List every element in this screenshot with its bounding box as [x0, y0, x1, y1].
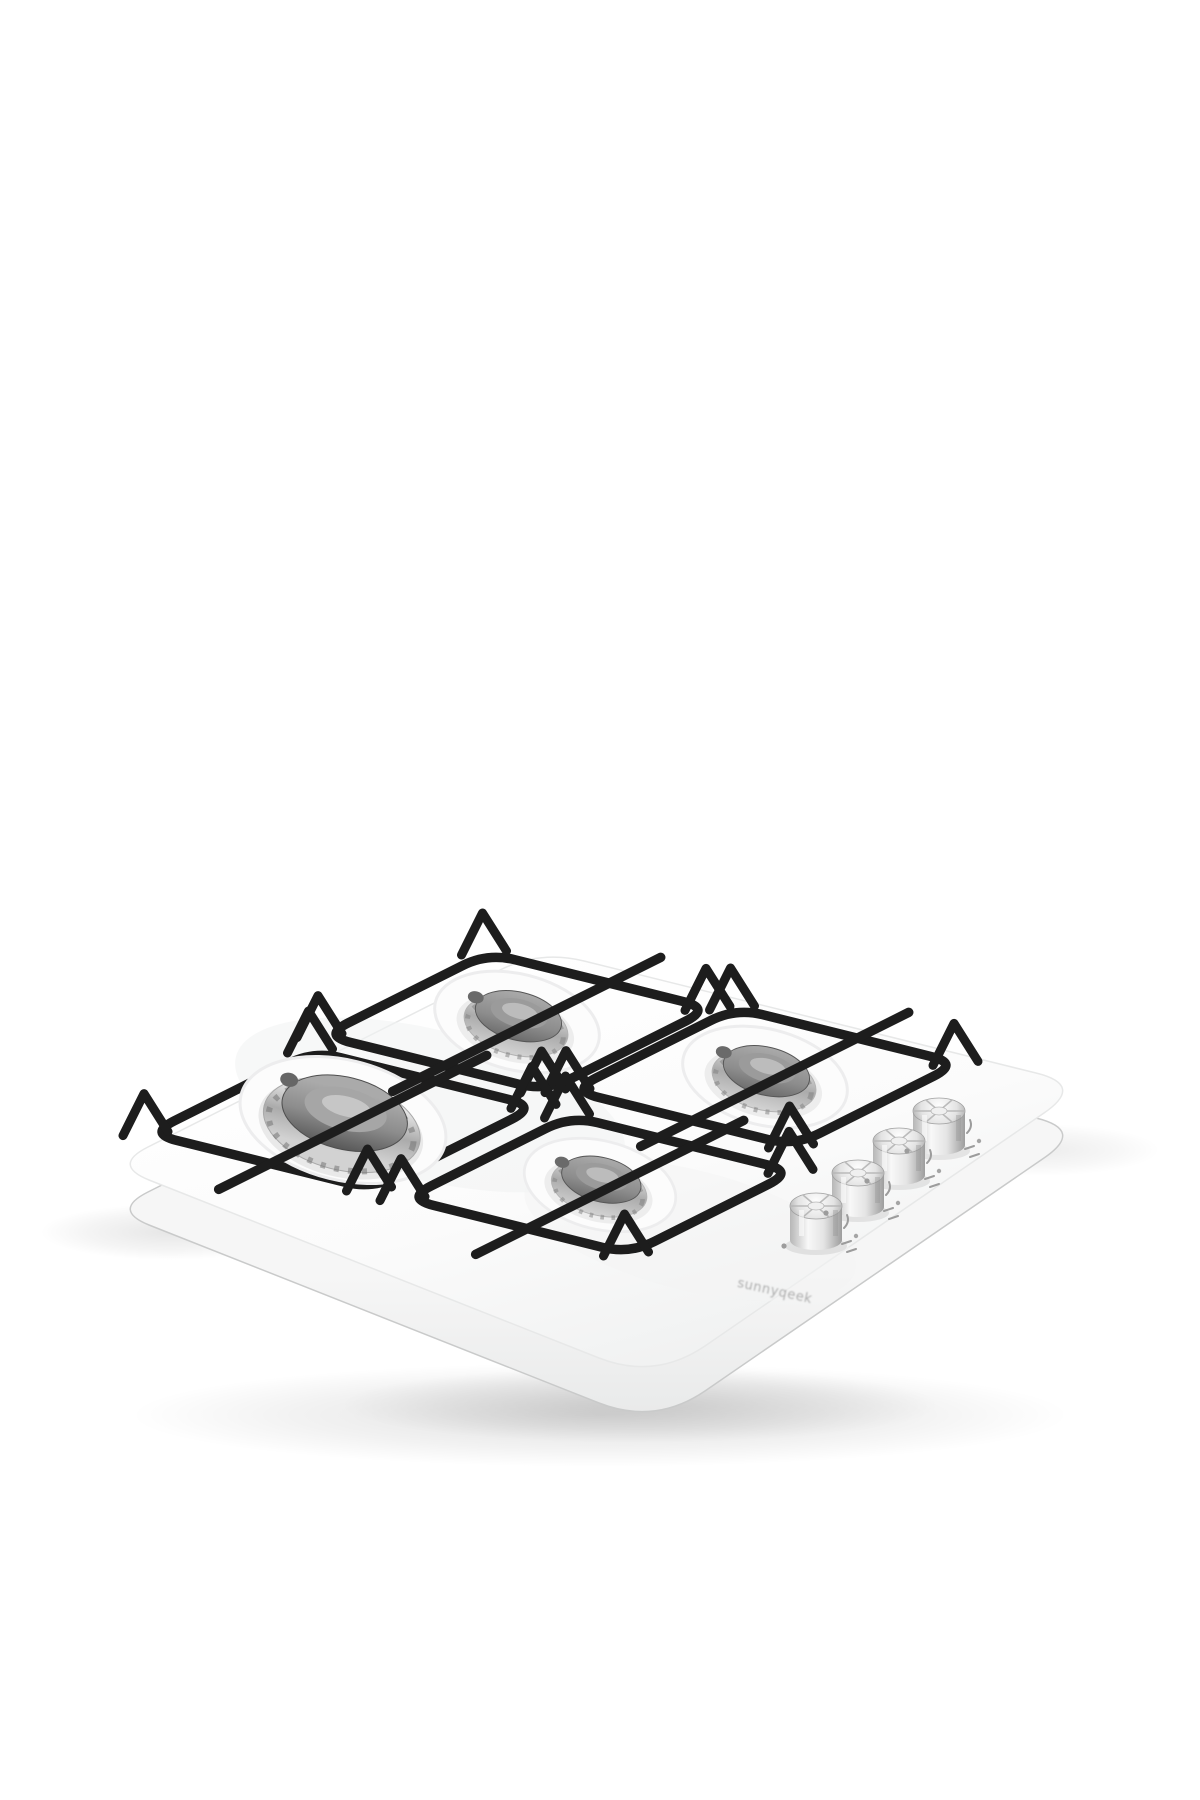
gas-hob-product-photo: sunnyqeek: [0, 0, 1200, 1800]
control-knob-1: [785, 1193, 847, 1255]
product-photo-canvas: sunnyqeek: [0, 0, 1200, 1800]
